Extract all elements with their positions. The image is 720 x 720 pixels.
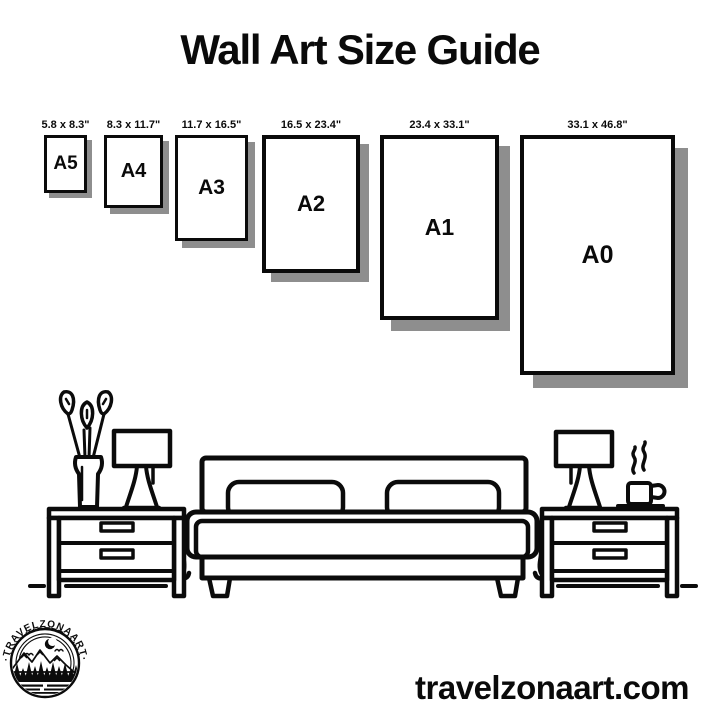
page-title: Wall Art Size Guide xyxy=(0,26,720,74)
paper-box-a2: A2 xyxy=(262,135,360,273)
size-item-a3: 11.7 x 16.5" A3 xyxy=(175,118,248,241)
size-dimensions-a4: 8.3 x 11.7" xyxy=(107,118,161,131)
vase-plant-icon xyxy=(61,392,112,507)
paper-box-a5: A5 xyxy=(44,135,87,193)
nightstand-right-illustration xyxy=(542,509,677,596)
size-item-a0: 33.1 x 46.8" A0 xyxy=(520,118,675,375)
coffee-cup-icon xyxy=(618,442,665,506)
lamp-right-icon xyxy=(556,432,612,508)
paper-box-a1: A1 xyxy=(380,135,499,320)
paper-label-a5: A5 xyxy=(53,153,77,175)
lamp-left-icon xyxy=(114,431,170,508)
size-dimensions-a1: 23.4 x 33.1" xyxy=(409,118,469,131)
paper-box-a4: A4 xyxy=(104,135,163,208)
size-dimensions-a5: 5.8 x 8.3" xyxy=(41,118,89,131)
size-item-a4: 8.3 x 11.7" A4 xyxy=(104,118,163,208)
size-dimensions-a3: 11.7 x 16.5" xyxy=(182,118,242,131)
drawer-handle-icon xyxy=(594,550,626,558)
drawer-handle-icon xyxy=(594,523,626,531)
size-dimensions-a0: 33.1 x 46.8" xyxy=(567,118,627,131)
paper-box-a0: A0 xyxy=(520,135,675,375)
paper-label-a4: A4 xyxy=(121,160,147,183)
size-item-a2: 16.5 x 23.4" A2 xyxy=(262,118,360,273)
drawer-handle-icon xyxy=(101,550,133,558)
brand-logo: ·TRAVELZONAART· ·TRAVELZONAART· xyxy=(2,617,88,709)
size-item-a5: 5.8 x 8.3" A5 xyxy=(44,118,87,193)
bedroom-scene-illustration xyxy=(0,380,720,610)
paper-label-a1: A1 xyxy=(425,214,454,241)
paper-label-a3: A3 xyxy=(198,176,225,200)
paper-label-a2: A2 xyxy=(297,191,325,217)
bed-illustration xyxy=(180,458,544,596)
paper-box-a3: A3 xyxy=(175,135,248,241)
size-dimensions-a2: 16.5 x 23.4" xyxy=(281,118,341,131)
size-item-a1: 23.4 x 33.1" A1 xyxy=(380,118,499,320)
website-text: travelzonaart.com xyxy=(402,669,702,707)
nightstand-left-illustration xyxy=(49,509,184,596)
drawer-handle-icon xyxy=(101,523,133,531)
paper-label-a0: A0 xyxy=(582,241,614,270)
